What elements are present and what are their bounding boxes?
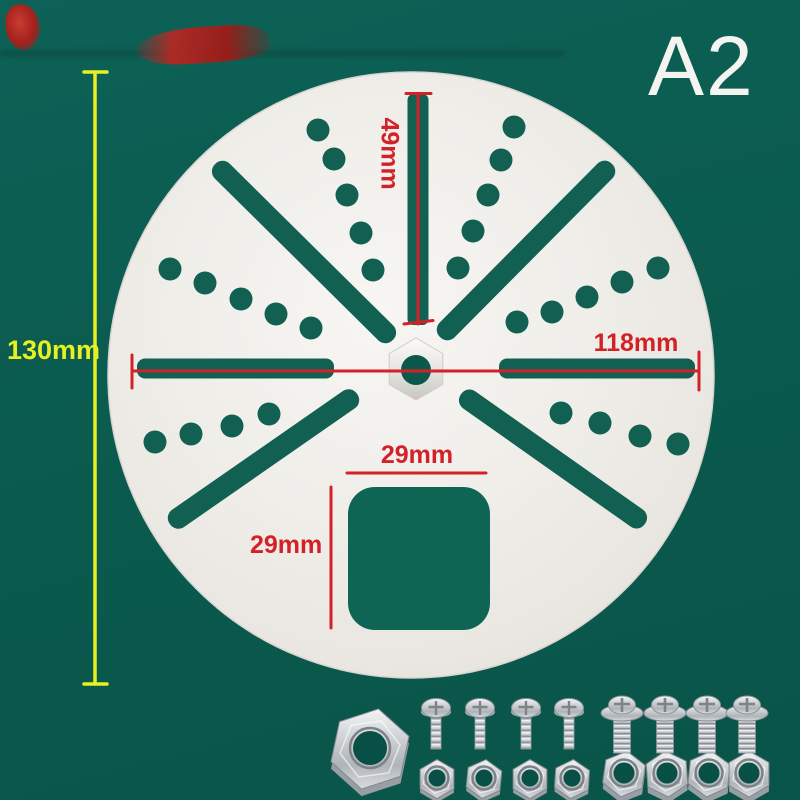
hex-nut-bolt — [729, 751, 769, 800]
nut-hole — [699, 763, 720, 784]
hole — [541, 301, 564, 324]
nut-hole — [614, 763, 635, 784]
hole — [180, 423, 203, 446]
square-hole — [348, 487, 490, 630]
hole — [647, 257, 670, 280]
dim-label-square-height: 29mm — [250, 533, 322, 558]
hex-nut-bolt — [603, 751, 646, 800]
hole — [490, 149, 513, 172]
yellow-dimension-lines — [84, 72, 107, 684]
hex-nut-small — [555, 760, 590, 800]
hole — [629, 425, 652, 448]
large-hex-nut — [331, 709, 409, 796]
hole — [576, 286, 599, 309]
screw-shaft — [431, 716, 441, 749]
dim-label-plate-height: 130mm — [7, 337, 93, 364]
screw-shaft — [521, 716, 531, 749]
hole — [447, 257, 470, 280]
hole — [265, 303, 288, 326]
hole — [362, 259, 385, 282]
dim-label-slot-length: 49mm — [377, 118, 402, 184]
hole — [589, 412, 612, 435]
bolt-shaft — [739, 716, 756, 753]
product-photo: 130mm 49mm 118mm 29mm 29mm A2 — [0, 0, 800, 800]
bolt-shaft — [614, 716, 631, 753]
bolt-shaft — [699, 716, 716, 753]
flange-bolt — [686, 696, 728, 753]
hex-nut-bolt — [646, 751, 687, 800]
flange-bolt — [726, 696, 768, 753]
pan-head-screw — [421, 699, 451, 750]
hole — [307, 119, 330, 142]
slot-right — [499, 359, 695, 379]
nut-hole — [522, 770, 539, 787]
nut-hole — [429, 770, 446, 787]
hole — [144, 431, 167, 454]
flange-bolt — [644, 696, 686, 753]
hole — [611, 271, 634, 294]
pan-head-screw — [554, 699, 584, 750]
nut-hole — [353, 731, 387, 765]
pan-head-screw — [511, 699, 541, 750]
hole — [221, 415, 244, 438]
hex-nut-small — [420, 760, 454, 800]
slot-left — [137, 359, 334, 379]
nut-hole — [739, 763, 760, 784]
nut-hole — [564, 770, 581, 787]
nut-hole — [476, 770, 493, 787]
hole — [159, 258, 182, 281]
flange-bolt — [601, 696, 643, 753]
hole — [336, 184, 359, 207]
hole — [550, 402, 573, 425]
pan-head-screw — [465, 699, 495, 750]
hex-nut-small — [513, 760, 547, 800]
screw-shaft — [475, 716, 485, 749]
hex-nut-bolt — [688, 751, 730, 800]
hole — [230, 288, 253, 311]
nut-hole — [657, 763, 678, 784]
hole — [477, 184, 500, 207]
hole — [462, 220, 485, 243]
hole — [194, 272, 217, 295]
dim-label-square-width: 29mm — [347, 443, 487, 468]
hole — [300, 317, 323, 340]
dim-label-side-span: 118mm — [593, 331, 679, 356]
screw-shaft — [564, 716, 574, 749]
hardware-set — [331, 696, 769, 800]
hole — [503, 116, 526, 139]
variant-label: A2 — [648, 24, 768, 108]
hole — [323, 148, 346, 171]
bolt-shaft — [657, 716, 674, 753]
hole — [258, 403, 281, 426]
hex-nut-small — [466, 760, 502, 800]
hole — [350, 222, 373, 245]
hole — [667, 433, 690, 456]
hole — [506, 311, 529, 334]
